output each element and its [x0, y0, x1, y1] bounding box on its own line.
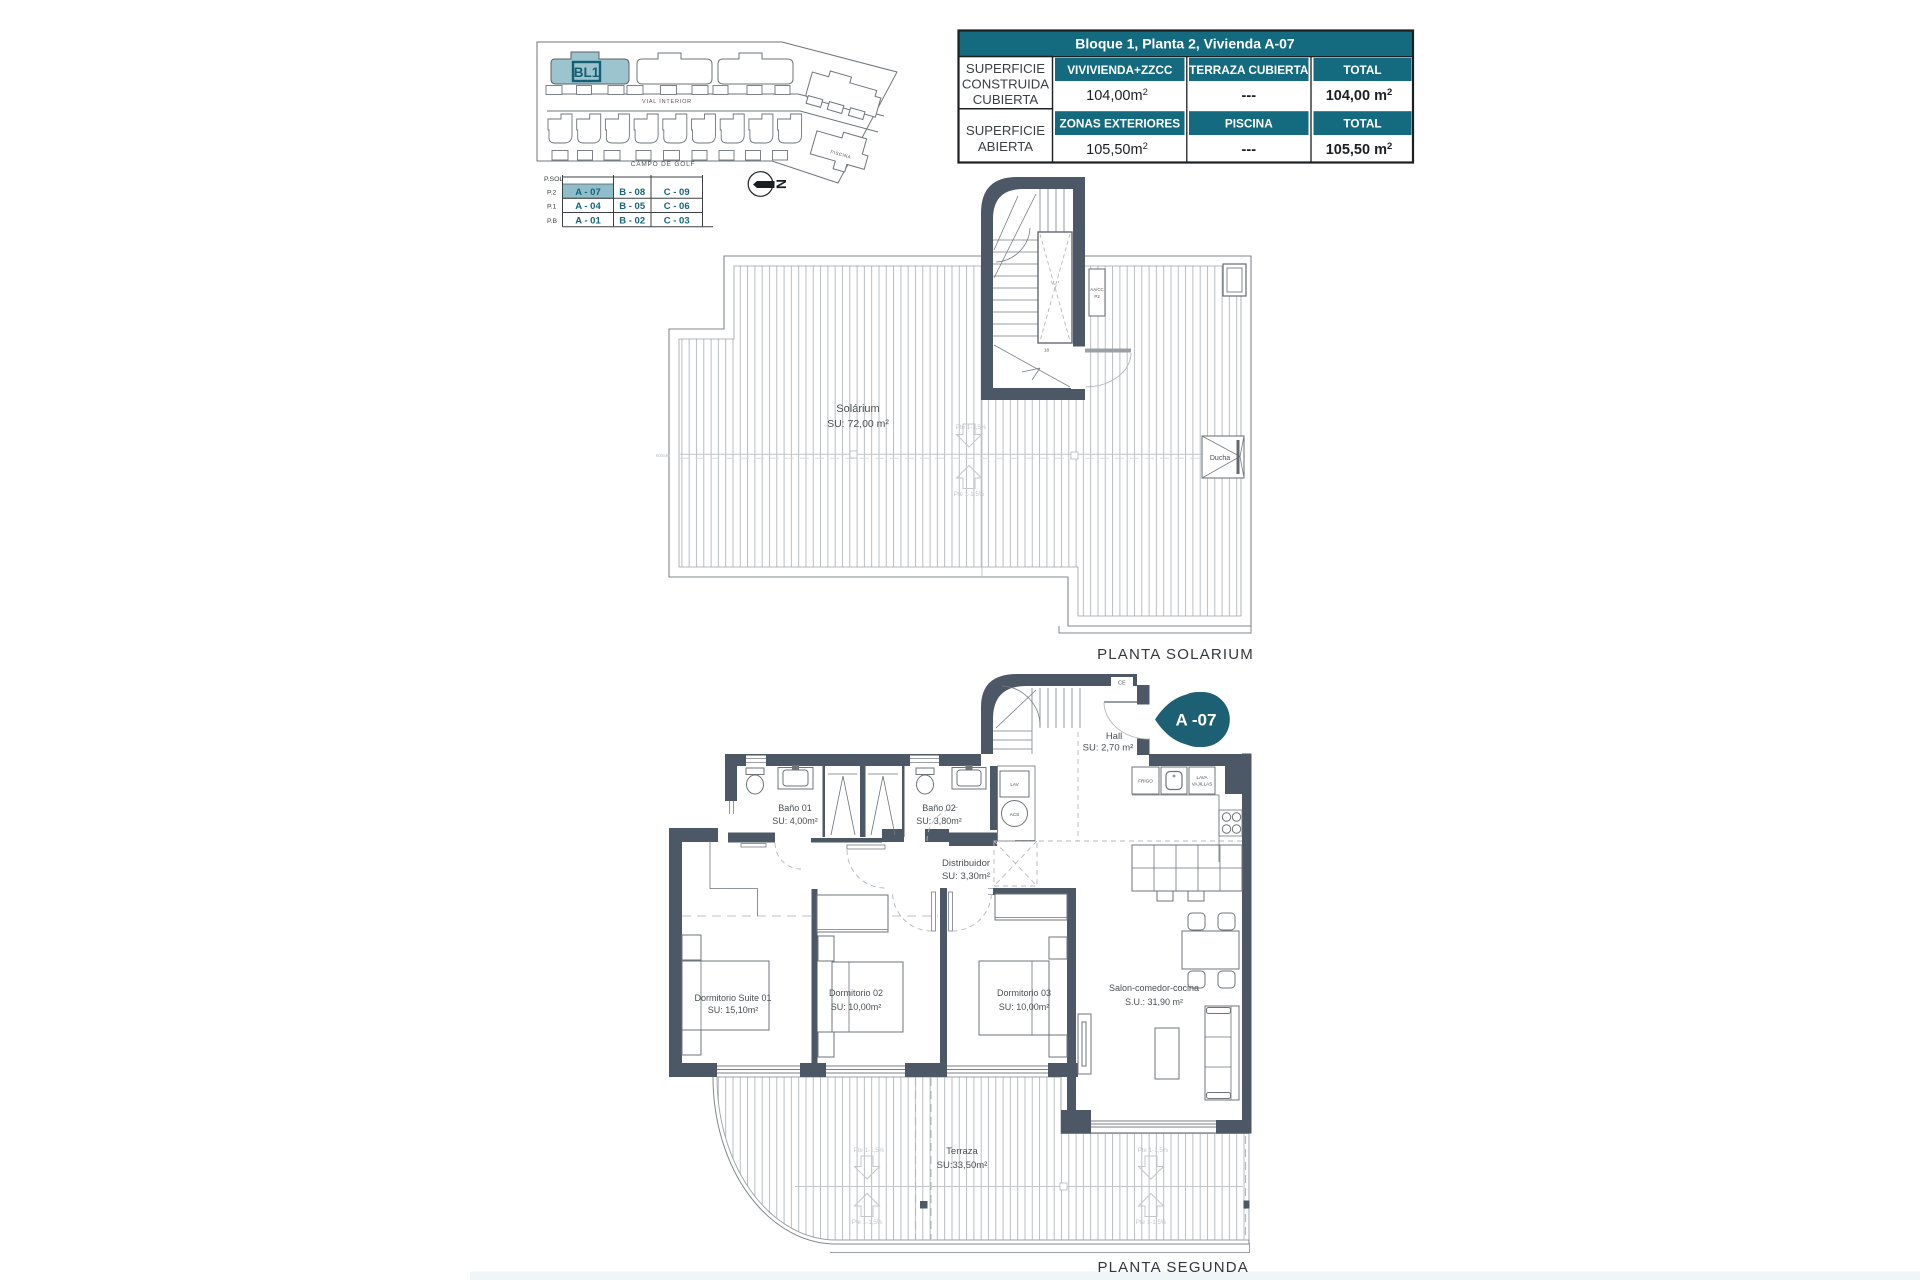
svg-text:Dormitorio Suite 01: Dormitorio Suite 01: [694, 993, 771, 1003]
svg-text:Dormitorio 03: Dormitorio 03: [997, 988, 1051, 998]
svg-text:PLANTA SEGUNDA: PLANTA SEGUNDA: [1097, 1259, 1249, 1276]
svg-text:SU: 10,00m²: SU: 10,00m²: [999, 1002, 1050, 1012]
svg-text:SU: 15,10m²: SU: 15,10m²: [708, 1005, 759, 1015]
svg-text:SU: 3,30m²: SU: 3,30m²: [942, 871, 990, 882]
svg-text:Hall: Hall: [1106, 731, 1122, 742]
svg-text:SU: 4,00m²: SU: 4,00m²: [772, 816, 818, 826]
svg-text:SU: 10,00m²: SU: 10,00m²: [831, 1002, 882, 1012]
svg-text:VAJILLAS: VAJILLAS: [1192, 782, 1213, 787]
svg-text:FRIGO: FRIGO: [1138, 779, 1153, 784]
svg-text:Distribuidor: Distribuidor: [942, 858, 990, 869]
svg-text:SU: 2,70 m²: SU: 2,70 m²: [1083, 743, 1134, 754]
svg-text:Baño 02: Baño 02: [922, 803, 956, 813]
svg-text:A -07: A -07: [1176, 711, 1217, 730]
svg-text:Dormitorio 02: Dormitorio 02: [829, 988, 883, 998]
svg-text:ACS: ACS: [1010, 812, 1019, 817]
svg-text:Baño 01: Baño 01: [778, 803, 812, 813]
svg-text:SU: 3,80m²: SU: 3,80m²: [916, 816, 962, 826]
svg-text:LAVA: LAVA: [1196, 775, 1208, 780]
svg-text:S.U.: 31,90 m²: S.U.: 31,90 m²: [1125, 997, 1183, 1007]
svg-text:Salon-comedor-cocina: Salon-comedor-cocina: [1109, 983, 1199, 993]
svg-text:LAV: LAV: [1010, 782, 1019, 787]
